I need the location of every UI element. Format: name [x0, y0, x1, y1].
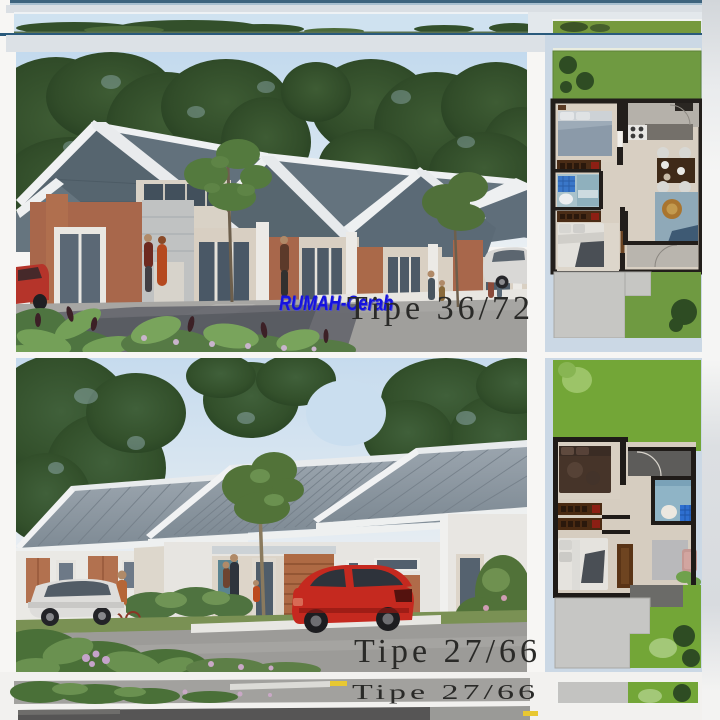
svg-text:Tipe 27/66: Tipe 27/66	[352, 681, 539, 704]
